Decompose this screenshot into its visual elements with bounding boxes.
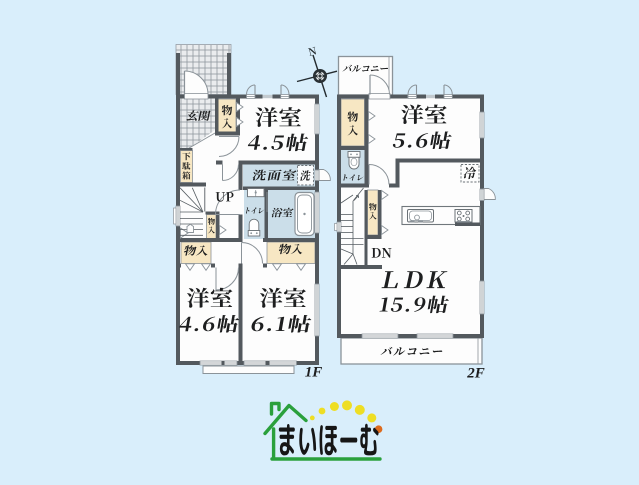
svg-text:2F: 2F bbox=[466, 366, 485, 382]
svg-text:1F: 1F bbox=[305, 365, 323, 381]
